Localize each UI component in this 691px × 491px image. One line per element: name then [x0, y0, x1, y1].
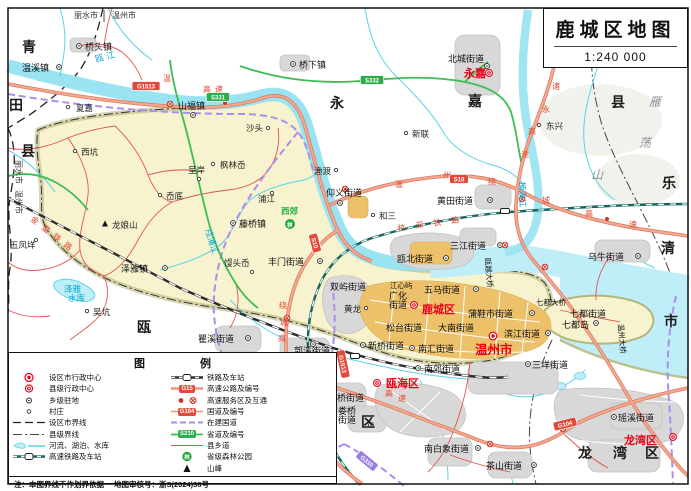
map-label: 鹿城区 [422, 302, 455, 316]
provincial-road-icon: S210 [167, 429, 207, 440]
town-symbol [291, 62, 296, 67]
town-symbol [231, 221, 236, 226]
map-label: 松台街道 [386, 322, 422, 333]
map-label: 东兴 [546, 121, 564, 131]
stn-symbol [501, 209, 510, 214]
legend-item: 县级界线 [9, 428, 167, 439]
county-symbol [670, 434, 677, 441]
svg-text:S10: S10 [454, 177, 465, 183]
map-label: 呈岸 [188, 165, 206, 175]
map-label: 林 [287, 221, 293, 229]
svg-text:S332: S332 [365, 78, 380, 84]
map-label: 大南街道 [438, 322, 474, 333]
map-label: 藤桥镇 [239, 218, 266, 229]
legend-item: 在建国道 [167, 417, 334, 428]
map-label: 蒲鞋市街道 [468, 308, 513, 319]
village-symbol [266, 126, 269, 129]
river-icon [9, 440, 49, 451]
town-symbol [410, 346, 415, 351]
map-label: 江心屿 [390, 281, 413, 290]
map-label: 夏嘉 [76, 103, 93, 113]
map-label: 西坑 [81, 147, 99, 157]
map-label: 南白象街道 [424, 443, 469, 454]
map-label: 速 [629, 220, 637, 229]
map-label: 青 [22, 39, 36, 55]
map-label: 温 [163, 74, 171, 83]
map-label: 雁 [649, 95, 663, 109]
city-seat-icon [9, 372, 49, 383]
map-label: 高 [585, 208, 593, 218]
town-symbol [338, 201, 343, 206]
village-symbol [197, 177, 200, 180]
town-symbol [636, 254, 641, 259]
map-label: 永 [329, 95, 345, 111]
map-label: 滨江街道 [504, 328, 540, 339]
map-label: 沙头 [246, 123, 264, 133]
legend-item: G104国道及编号 [167, 406, 334, 417]
town-symbol [246, 336, 251, 341]
town-symbol [488, 198, 493, 203]
national-road-icon: G104 [167, 406, 207, 417]
map-label: 温州市 [112, 10, 136, 20]
legend-item: 设区市行政中心 [9, 372, 167, 383]
under-construction-icon [167, 417, 207, 428]
map-label: 瑶溪街道 [618, 412, 654, 423]
road-badge: S331 [206, 93, 229, 102]
city-symbol [489, 332, 497, 340]
map-label: 街道 [389, 299, 407, 310]
map-label: 黄田街道 [437, 195, 473, 206]
map-label: 县 [611, 94, 625, 110]
map-label: 七都岛 [562, 319, 589, 330]
legend-title: 图 例 [9, 353, 336, 372]
map-label: 湾 [613, 445, 627, 461]
map-label: 三江街道 [450, 240, 486, 251]
map-label: 馒头岙 [224, 258, 250, 268]
county-symbol [411, 302, 418, 309]
map-label: 乌牛街道 [588, 251, 624, 262]
map-label: 速 [521, 150, 529, 159]
city-boundary-icon [9, 417, 49, 428]
map-label: 县 [21, 143, 35, 159]
map-label: 七都街道 [570, 308, 606, 319]
county-symbol [486, 70, 493, 77]
ix-symbol [542, 264, 548, 270]
legend-item: 林省级森林公园 [167, 451, 334, 462]
village-symbol [371, 213, 374, 216]
town-symbol [77, 44, 82, 49]
town-symbol [163, 266, 168, 271]
map-label: 楠溪江 [517, 182, 528, 208]
map-label: 五马街道 [424, 284, 460, 295]
map-label: 七都大桥 [536, 297, 566, 307]
map-label: 温 [395, 180, 403, 189]
svg-text:S331: S331 [211, 95, 226, 101]
map-label: 茶山街道 [486, 460, 522, 471]
town-symbol [191, 113, 196, 118]
map-scale: 1:240 000 [554, 46, 677, 64]
village-symbol [211, 162, 214, 165]
map-label: 仰义街道 [326, 187, 362, 198]
map-label: 丽水市 [14, 160, 24, 184]
map-label: 和三 [379, 211, 396, 221]
map-label: 枫林岙 [220, 160, 246, 170]
village-icon [9, 406, 49, 417]
map-label: 山福镇 [178, 100, 205, 111]
map-label: 桥下镇 [299, 59, 326, 70]
map-label: 城 [280, 318, 288, 327]
legend-item: 河流、湖泊、水库 [9, 440, 167, 451]
map-label: 山 [591, 168, 604, 182]
road-badge: G1513 [132, 82, 160, 91]
map-label: 绕 [488, 176, 496, 186]
map-label: 龙湾区 [623, 433, 657, 447]
legend-item: G15高速公路及编号 [167, 383, 334, 394]
sv-symbol [605, 217, 609, 221]
county-boundary-icon [9, 429, 49, 440]
map-label: 新桥街道 [368, 340, 404, 351]
map-label: 田 [9, 97, 23, 113]
map-label: 吴坑 [93, 307, 111, 317]
village-symbol [404, 131, 407, 134]
village-symbol [364, 306, 367, 309]
map-label: 五凤垟 [10, 240, 36, 250]
map-label: 龙娘山 [112, 220, 138, 230]
village-symbol [85, 309, 88, 312]
legend-item: 铁路及车站 [167, 372, 334, 383]
village-symbol [537, 123, 540, 126]
map-label: 渔渡 [314, 166, 332, 176]
town-symbol [594, 321, 599, 326]
map-label: 三垟街道 [532, 359, 568, 370]
map-label: 西郊 [281, 206, 299, 216]
county-road-icon [167, 440, 207, 451]
legend-item: 高速服务区及互通 [167, 395, 334, 406]
town-symbol [546, 331, 551, 336]
town-symbol [361, 343, 366, 348]
map-label: 高 [278, 333, 286, 343]
legend-item: S210省道及编号 [167, 428, 334, 439]
map-label: 乐 [662, 175, 676, 191]
village-symbol [250, 270, 253, 273]
map-label: 泽雅镇 [121, 263, 148, 274]
legend-item: 县级行政中心 [9, 383, 167, 394]
map-label: 温溪镇 [22, 62, 49, 73]
map-label: 丽水市 [74, 10, 98, 20]
map-label: 瞿溪街道 [198, 333, 234, 344]
map-label: 温州市 [475, 342, 513, 357]
county-symbol [374, 380, 381, 387]
map-label: 清 [661, 240, 675, 256]
township-icon [9, 395, 49, 406]
ix-symbol [502, 242, 508, 248]
town-symbol [532, 463, 537, 468]
town-symbol [474, 287, 479, 292]
map-label: 岙底 [166, 191, 184, 201]
railway-icon [167, 372, 207, 383]
map-label: 城 [542, 196, 550, 205]
legend: 图 例 设区市行政中心 县级行政中心 乡级驻地 村庄 设区市界线 县级界线 河流… [8, 352, 337, 484]
map-label: 瓯北街道 [397, 253, 433, 264]
map-label: 水库 [68, 293, 86, 303]
town-symbol [526, 362, 531, 367]
map-label: 浦江 [258, 194, 276, 204]
map-label: 双屿街道 [330, 281, 366, 292]
town-symbol [318, 259, 323, 264]
map-label: 温州市 [14, 190, 24, 214]
legend-item: 设区市界线 [9, 417, 167, 428]
map-label: 街道 [338, 414, 356, 425]
map-label: 龙 [577, 445, 592, 461]
map-label: 区 [361, 414, 375, 430]
hsr-icon [9, 451, 49, 462]
town-symbol [476, 446, 481, 451]
legend-item: 山峰 [167, 462, 334, 473]
expressway-icon: G15 [167, 383, 207, 394]
village-symbol [158, 193, 161, 196]
map-label: 永 [542, 104, 550, 114]
town-symbol [498, 243, 503, 248]
legend-item: 村庄 [9, 406, 167, 417]
map-label: 瓯 [137, 319, 151, 335]
legend-item: 乡级驻地 [9, 395, 167, 406]
map-title: 鹿城区地图 [544, 9, 687, 42]
map-page: 青田县永嘉县乐清市瓯海区龙湾区雁荡山永嘉鹿城区温州市瓯海区龙湾区丽水市温州市丽水… [0, 0, 691, 491]
map-label: 南郊街道 [424, 363, 460, 374]
road-badge: S332 [360, 76, 383, 85]
map-label: 瓯海区 [386, 376, 419, 390]
village-symbol [73, 149, 76, 152]
town-symbol [444, 256, 449, 261]
map-label: 黄龙 [344, 304, 362, 314]
service-interchange-icon [167, 395, 207, 406]
town-symbol [57, 65, 62, 70]
town-symbol [416, 366, 421, 371]
legend-item: 县乡道 [167, 440, 334, 451]
map-label: 市 [664, 313, 678, 329]
map-label: 嘉 [467, 93, 482, 109]
map-label: 高 [528, 126, 536, 136]
ix-symbol [487, 441, 493, 447]
map-label: 南汇街道 [418, 343, 454, 354]
town-symbol [612, 415, 617, 420]
map-label: 高 [385, 388, 393, 398]
map-label: 诸 [552, 82, 560, 91]
map-label: 荡 [639, 136, 653, 150]
county-seat-icon [9, 383, 49, 394]
village-symbol [66, 105, 69, 108]
svg-text:林: 林 [184, 453, 190, 461]
road-badge: S10 [450, 175, 469, 184]
map-label: 绕 [279, 300, 287, 310]
map-label: 丰门街道 [268, 256, 304, 267]
map-approval-number: 地图审核号：浙S(2024)38号 [114, 479, 209, 490]
map-label: 速 [398, 394, 406, 403]
village-symbol [334, 168, 337, 171]
map-label: 北城街道 [448, 53, 484, 64]
legend-item: 高速铁路及车站 [9, 451, 167, 462]
peak-icon [167, 463, 207, 474]
legend-note: 注：本图界线不作划界依据 [14, 479, 104, 490]
forest-park-icon: 林 [167, 451, 207, 462]
map-label: 区 [645, 445, 659, 461]
map-label: 永嘉 [463, 66, 486, 80]
town-symbol [530, 311, 535, 316]
ix-symbol [167, 101, 173, 107]
stn-symbol [351, 354, 360, 359]
svg-text:G1513: G1513 [137, 84, 156, 90]
title-box: 鹿城区地图 1:240 000 [543, 8, 688, 68]
map-label: 新联 [412, 129, 430, 139]
